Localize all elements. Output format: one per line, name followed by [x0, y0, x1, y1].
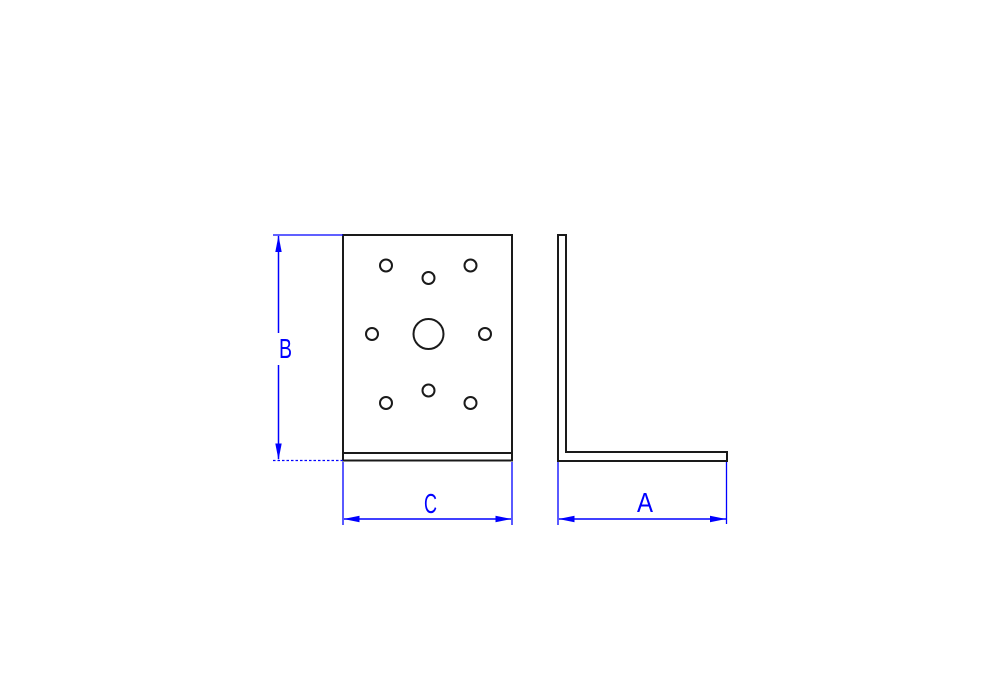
front-flange-edge [343, 453, 512, 461]
dimension-label-c: C [424, 488, 437, 519]
arrowhead-a-left-icon [559, 516, 575, 522]
side-view [558, 235, 727, 461]
arrowhead-a-right-icon [710, 516, 726, 522]
screw-hole [423, 272, 435, 284]
arrowhead-c-left-icon [344, 516, 360, 522]
arrowhead-c-right-icon [496, 516, 512, 522]
screw-hole [423, 385, 435, 397]
arrowhead-b-down-icon [275, 444, 281, 461]
screw-hole [465, 260, 477, 272]
screw-hole [380, 397, 392, 409]
screw-hole [380, 260, 392, 272]
dimension-label-b: B [279, 333, 292, 364]
dimension-label-a: A [637, 487, 653, 518]
side-l-profile [558, 235, 727, 461]
front-view [343, 235, 512, 461]
center-bolt-hole [414, 319, 444, 349]
screw-hole [479, 328, 491, 340]
screw-hole [465, 397, 477, 409]
technical-drawing: B C A [0, 0, 1000, 700]
arrowhead-b-up-icon [275, 236, 281, 253]
screw-hole [366, 328, 378, 340]
